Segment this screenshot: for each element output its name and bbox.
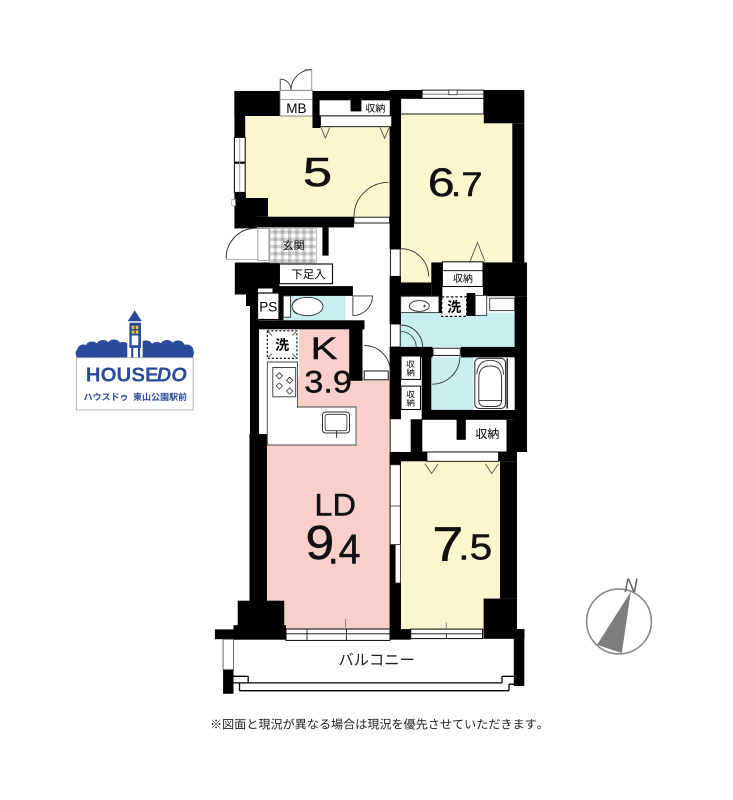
svg-text:.7: .7 (451, 165, 483, 204)
svg-text:HOUSE: HOUSE (86, 364, 159, 387)
svg-text:.4: .4 (328, 525, 361, 572)
svg-text:MB: MB (286, 101, 306, 116)
svg-text:DO: DO (157, 365, 187, 387)
svg-text:5: 5 (303, 149, 332, 195)
svg-text:N: N (624, 576, 638, 597)
svg-text:PS: PS (259, 300, 277, 315)
svg-text:K: K (311, 330, 338, 366)
svg-text:3.9: 3.9 (304, 364, 352, 399)
svg-text:.5: .5 (458, 528, 492, 568)
